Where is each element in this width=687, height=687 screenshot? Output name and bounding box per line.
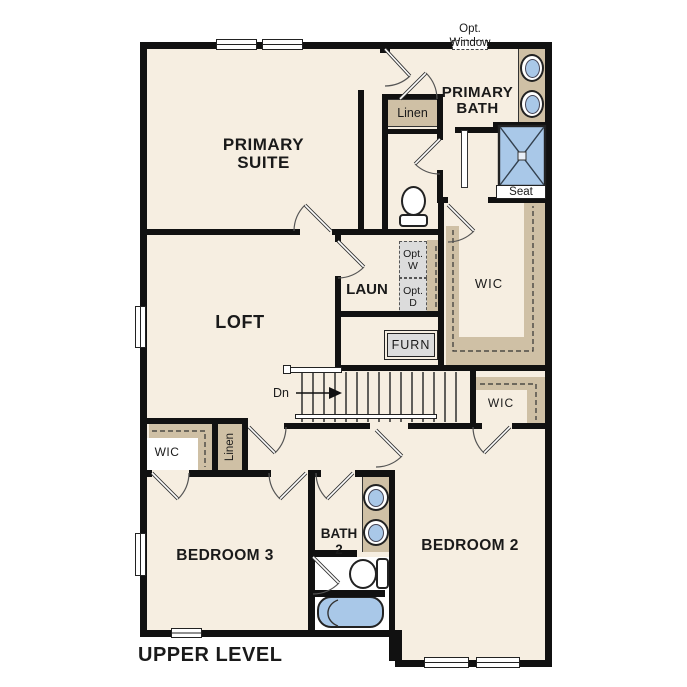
bedroom3-label: BEDROOM 3 bbox=[150, 547, 300, 565]
furnace-label: FURN bbox=[392, 338, 431, 352]
stair-newel-post bbox=[283, 365, 291, 374]
linen-hall-label: Linen bbox=[216, 424, 244, 470]
floor-plan: Opt.W Opt.D bbox=[0, 0, 687, 687]
optional-window-label: Opt.Window bbox=[440, 8, 500, 50]
seat-label: Seat bbox=[509, 186, 533, 198]
linen-bath-label: Linen bbox=[387, 106, 438, 120]
bedroom2-wic-label: WIC bbox=[475, 396, 527, 410]
shower bbox=[499, 126, 545, 186]
shower-glass bbox=[461, 130, 468, 188]
toilet-bowl bbox=[401, 186, 426, 216]
tub-inner-line bbox=[328, 600, 338, 626]
sink bbox=[363, 484, 389, 511]
plan-title: UPPER LEVEL bbox=[138, 644, 358, 667]
plan-linework bbox=[0, 0, 687, 687]
sink bbox=[363, 519, 389, 546]
bath2-label: BATH2 bbox=[317, 510, 361, 558]
laundry-label: LAUN bbox=[338, 281, 396, 298]
toilet-bowl bbox=[349, 559, 377, 589]
bedroom3-wic-label: WIC bbox=[143, 445, 191, 459]
toilet-tank bbox=[399, 214, 428, 227]
stair-direction-label: Dn bbox=[268, 386, 294, 400]
stair-handrail bbox=[286, 367, 342, 373]
bedroom2-label: BEDROOM 2 bbox=[395, 537, 545, 555]
toilet-tank bbox=[376, 558, 389, 589]
stair-lower-rail bbox=[295, 414, 437, 419]
primary-wic-label: WIC bbox=[460, 276, 518, 291]
primary-suite-label: PRIMARYSUITE bbox=[186, 118, 341, 172]
furnace-unit: FURN bbox=[384, 330, 438, 360]
shower-seat: Seat bbox=[496, 185, 546, 199]
loft-label: LOFT bbox=[190, 312, 290, 333]
